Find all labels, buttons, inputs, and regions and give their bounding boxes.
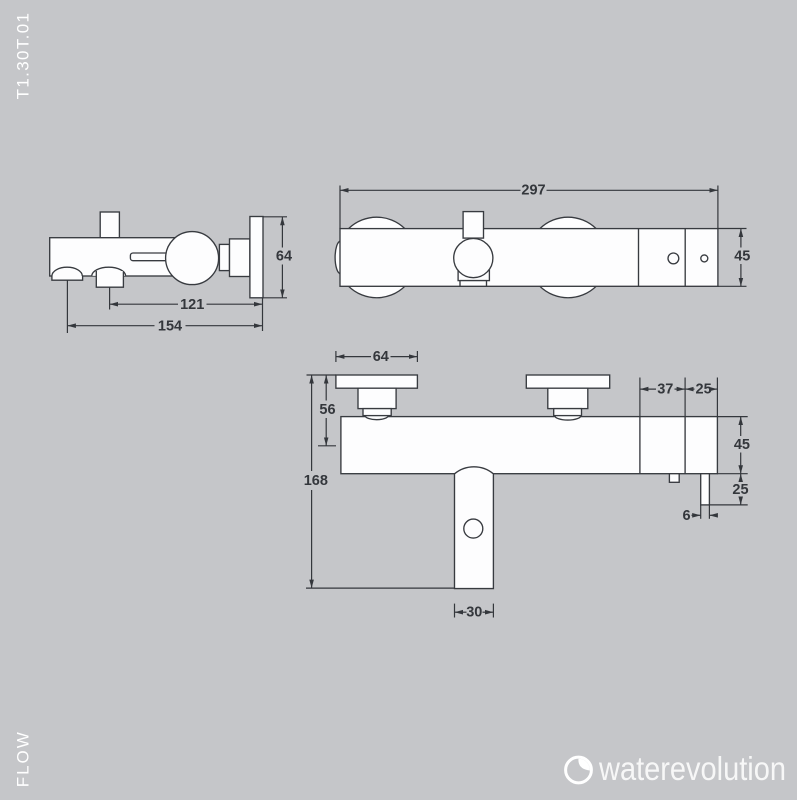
svg-text:6: 6 — [682, 508, 690, 524]
svg-text:T1.30T.01: T1.30T.01 — [14, 12, 33, 100]
svg-text:56: 56 — [319, 402, 335, 418]
svg-text:64: 64 — [276, 249, 292, 265]
svg-text:37: 37 — [657, 382, 673, 398]
svg-text:154: 154 — [158, 318, 182, 334]
svg-text:45: 45 — [734, 249, 750, 265]
svg-text:25: 25 — [696, 382, 712, 398]
svg-text:30: 30 — [466, 605, 482, 621]
svg-text:FLOW: FLOW — [14, 730, 33, 787]
svg-text:168: 168 — [304, 473, 328, 489]
svg-text:25: 25 — [732, 482, 748, 498]
svg-text:297: 297 — [521, 183, 545, 199]
svg-text:45: 45 — [734, 437, 750, 453]
svg-text:121: 121 — [180, 297, 204, 313]
svg-text:64: 64 — [373, 349, 389, 365]
svg-text:waterevolution: waterevolution — [598, 750, 786, 787]
